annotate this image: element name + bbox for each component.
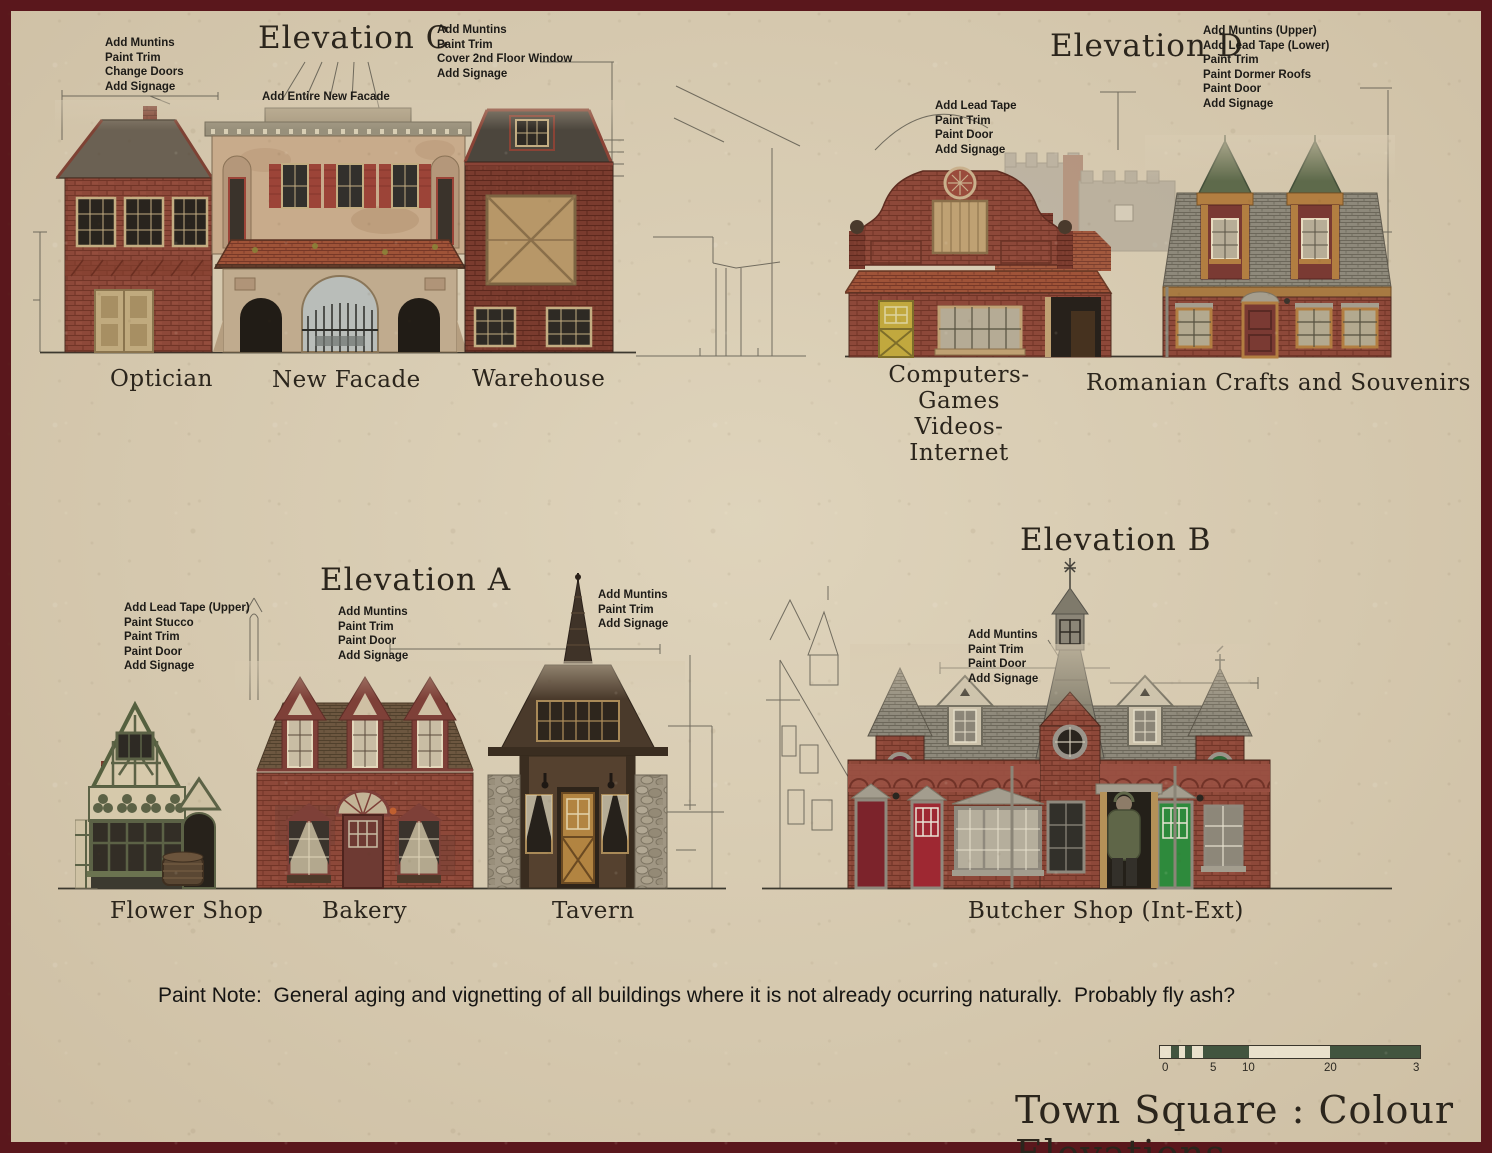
central-bay bbox=[1040, 692, 1100, 888]
annotation-a-center: Add Muntins Paint Trim Paint Door Add Si… bbox=[338, 605, 408, 663]
scale-bar bbox=[1160, 1046, 1420, 1058]
label-warehouse: Warehouse bbox=[472, 366, 605, 392]
annotation-a-right: Add Muntins Paint Trim Add Signage bbox=[598, 588, 668, 632]
annotation-b-left: Add Muntins Paint Trim Paint Door Add Si… bbox=[968, 628, 1038, 686]
label-optician: Optician bbox=[110, 366, 213, 392]
paint-note: Paint Note: General aging and vignetting… bbox=[158, 984, 1235, 1008]
annotation-a-left: Add Lead Tape (Upper) Paint Stucco Paint… bbox=[124, 601, 250, 674]
wicker-basket bbox=[163, 852, 203, 885]
elevation-a-title: Elevation A bbox=[320, 562, 511, 598]
annotation-c-center: Add Entire New Facade bbox=[262, 90, 390, 105]
elevation-b-drawing bbox=[760, 540, 1405, 892]
building-bakery bbox=[257, 677, 473, 888]
label-new-facade: New Facade bbox=[272, 367, 421, 393]
elevation-d-drawing bbox=[845, 135, 1395, 361]
annotation-c-right: Add Muntins Paint Trim Cover 2nd Floor W… bbox=[437, 23, 572, 81]
building-new-facade bbox=[205, 108, 471, 352]
elevation-sheet: Elevation C Elevation D Elevation A Elev… bbox=[0, 0, 1492, 1153]
building-warehouse bbox=[465, 110, 613, 352]
label-butcher-shop: Butcher Shop (Int-Ext) bbox=[968, 898, 1244, 924]
sheet-title: Town Square : Colour Elevations bbox=[1015, 1088, 1492, 1153]
label-romanian-crafts: Romanian Crafts and Souvenirs bbox=[1086, 370, 1471, 396]
elevation-b-title: Elevation B bbox=[1020, 522, 1212, 558]
annotation-d-left: Add Lead Tape Paint Trim Paint Door Add … bbox=[935, 99, 1017, 157]
scale-tick-10: 10 bbox=[1242, 1062, 1255, 1074]
building-flower-shop bbox=[75, 705, 219, 888]
scale-tick-20: 20 bbox=[1324, 1062, 1337, 1074]
label-computers-games: Computers-Games Videos-Internet bbox=[874, 362, 1044, 466]
label-bakery: Bakery bbox=[322, 898, 407, 924]
elevation-c-title: Elevation C bbox=[258, 20, 450, 56]
scale-tick-0: 0 bbox=[1162, 1062, 1168, 1074]
label-tavern: Tavern bbox=[552, 898, 635, 924]
building-butcher-shop bbox=[848, 558, 1270, 888]
scale-tick-5: 5 bbox=[1210, 1062, 1216, 1074]
annotation-c-left: Add Muntins Paint Trim Change Doors Add … bbox=[105, 36, 184, 94]
elevation-c-drawing bbox=[55, 100, 625, 356]
scale-tick-30: 3 bbox=[1413, 1062, 1419, 1074]
building-optician bbox=[57, 106, 212, 352]
label-flower-shop: Flower Shop bbox=[110, 898, 263, 924]
annotation-d-right: Add Muntins (Upper) Add Lead Tape (Lower… bbox=[1203, 24, 1329, 111]
entrance-with-person bbox=[1096, 784, 1162, 888]
